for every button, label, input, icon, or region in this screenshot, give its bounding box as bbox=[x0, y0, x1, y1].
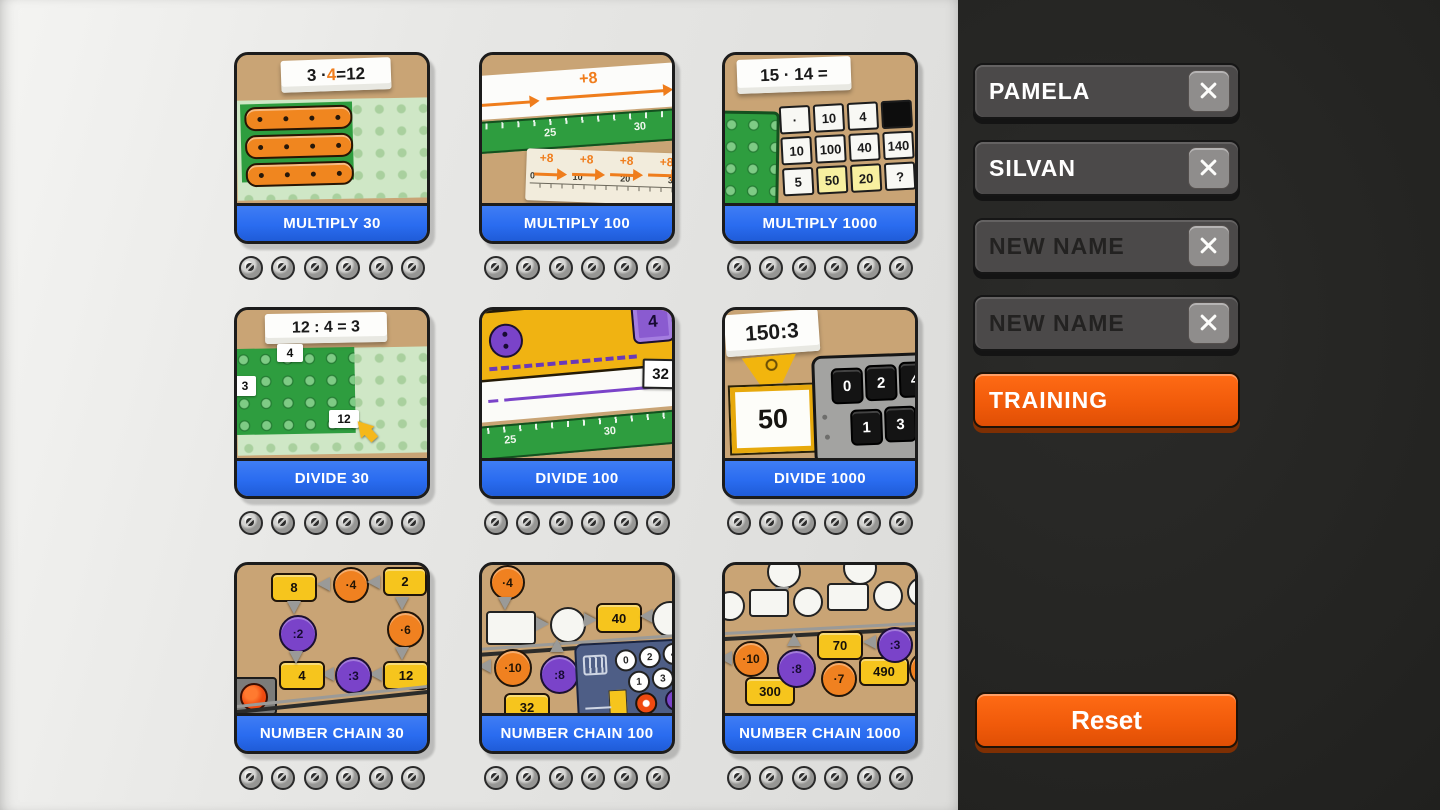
card-title: MULTIPLY 100 bbox=[482, 203, 672, 241]
progress-screw bbox=[304, 256, 328, 280]
progress-screw bbox=[727, 766, 751, 790]
game-card-divide-1000[interactable]: 150:3 50 0 2 4 1 3 DIVIDE 1000 bbox=[722, 307, 918, 499]
training-button[interactable]: TRAINING bbox=[973, 372, 1240, 428]
progress-screw bbox=[614, 511, 638, 535]
card-illustration: 3 · 4 =12 bbox=[237, 55, 427, 203]
panel-line bbox=[585, 706, 611, 709]
chain-arrow-icon bbox=[482, 659, 491, 673]
player-slot-3[interactable]: NEW NAME bbox=[973, 218, 1240, 274]
chain-arrow-icon bbox=[289, 651, 303, 664]
progress-screw bbox=[824, 511, 848, 535]
progress-row bbox=[479, 256, 675, 280]
orange-rod bbox=[245, 133, 354, 160]
card-unit-number-chain-100: ·4 40 ·10 :8 32 bbox=[479, 562, 675, 790]
card-illustration: 12 : 4 = 3 4 3 12 bbox=[237, 310, 427, 458]
equation-part: =12 bbox=[336, 64, 366, 85]
progress-screw bbox=[271, 511, 295, 535]
table-cell: ? bbox=[884, 161, 915, 191]
progress-screw bbox=[759, 256, 783, 280]
table-cell: 10 bbox=[780, 136, 812, 166]
table-cell: 100 bbox=[814, 134, 846, 164]
progress-screw bbox=[516, 766, 540, 790]
multiplication-table: · 10 4 10 100 40 140 5 50 20 ? bbox=[779, 100, 915, 197]
progress-row bbox=[234, 511, 430, 535]
progress-screw bbox=[304, 511, 328, 535]
equation-note: 15 · 14 = bbox=[736, 56, 851, 94]
dimension-tag: 3 bbox=[237, 376, 256, 396]
player-name-placeholder: NEW NAME bbox=[989, 310, 1188, 337]
orange-rod bbox=[244, 105, 353, 132]
panel-key: 0 bbox=[614, 649, 637, 672]
game-card-multiply-30[interactable]: 3 · 4 =12 MULTIPLY 30 bbox=[234, 52, 430, 244]
orange-rod bbox=[246, 161, 355, 188]
equation-note: 150:3 bbox=[725, 310, 820, 357]
close-icon[interactable] bbox=[1188, 225, 1230, 267]
panel-key: 2 bbox=[638, 646, 661, 669]
game-card-multiply-100[interactable]: +8 25 30 +8 +8 +8 +8 bbox=[479, 52, 675, 244]
progress-screw bbox=[271, 766, 295, 790]
card-title: DIVIDE 1000 bbox=[725, 458, 915, 496]
progress-screw bbox=[369, 766, 393, 790]
card-title: DIVIDE 100 bbox=[482, 458, 672, 496]
panel-slider bbox=[608, 689, 627, 713]
player-slot-1[interactable]: PAMELA bbox=[973, 63, 1240, 119]
ruler-tick: 30 bbox=[603, 425, 616, 438]
progress-screw bbox=[271, 256, 295, 280]
level-select-area: 3 · 4 =12 MULTIPLY 30 +8 bbox=[0, 0, 958, 810]
player-name: PAMELA bbox=[989, 78, 1188, 105]
progress-screw bbox=[727, 256, 751, 280]
player-slot-4[interactable]: NEW NAME bbox=[973, 295, 1240, 351]
progress-screw bbox=[581, 256, 605, 280]
peg-board bbox=[240, 102, 354, 183]
card-unit-number-chain-1000: ·10 300 :8 70 ·7 490 :3 ·12 NUMBER CHAIN… bbox=[722, 562, 918, 790]
close-icon[interactable] bbox=[1188, 147, 1230, 189]
progress-row bbox=[722, 766, 918, 790]
progress-row bbox=[479, 766, 675, 790]
paper-op: +8 bbox=[580, 152, 594, 166]
chain-empty-circle bbox=[652, 601, 672, 637]
dimension-tag: 4 bbox=[277, 344, 303, 362]
card-illustration: 15 · 14 = · 10 4 10 100 40 140 5 50 20 bbox=[725, 55, 915, 203]
close-icon[interactable] bbox=[1188, 70, 1230, 112]
progress-screw bbox=[336, 766, 360, 790]
progress-screw bbox=[239, 511, 263, 535]
progress-screw bbox=[369, 511, 393, 535]
card-title: MULTIPLY 30 bbox=[237, 203, 427, 241]
ruler-tick: 30 bbox=[633, 120, 646, 133]
keypad-key: 2 bbox=[864, 364, 897, 401]
progress-screw bbox=[401, 766, 425, 790]
progress-screw bbox=[759, 511, 783, 535]
card-title: NUMBER CHAIN 100 bbox=[482, 713, 672, 751]
paper-op: +8 bbox=[540, 151, 554, 165]
progress-screw bbox=[401, 511, 425, 535]
progress-screw bbox=[304, 766, 328, 790]
progress-screw bbox=[824, 766, 848, 790]
progress-row bbox=[722, 256, 918, 280]
card-illustration: ·4 40 ·10 :8 32 bbox=[482, 565, 672, 713]
table-cell: 4 bbox=[847, 101, 879, 131]
card-title: MULTIPLY 1000 bbox=[725, 203, 915, 241]
chain-op: ·7 bbox=[821, 661, 857, 697]
progress-screw bbox=[581, 511, 605, 535]
chain-arrow-icon bbox=[395, 597, 409, 610]
divide-symbol-icon bbox=[488, 322, 525, 359]
progress-screw bbox=[401, 256, 425, 280]
card-unit-multiply-30: 3 · 4 =12 MULTIPLY 30 bbox=[234, 52, 430, 280]
progress-screw bbox=[824, 256, 848, 280]
table-cell: 140 bbox=[882, 131, 914, 161]
chain-empty-circle bbox=[843, 565, 877, 585]
game-card-number-chain-1000[interactable]: ·10 300 :8 70 ·7 490 :3 ·12 NUMBER CHAIN… bbox=[722, 562, 918, 754]
chain-empty-circle bbox=[907, 577, 915, 607]
table-cell: 20 bbox=[850, 163, 882, 193]
card-unit-divide-1000: 150:3 50 0 2 4 1 3 DIVIDE 1000 bbox=[722, 307, 918, 535]
table-cell: 5 bbox=[782, 167, 814, 197]
chain-arrow-icon bbox=[787, 633, 801, 646]
progress-screw bbox=[614, 766, 638, 790]
chain-empty-circle bbox=[550, 607, 586, 643]
chain-op: ·10 bbox=[733, 641, 769, 677]
equation-note: 3 · 4 =12 bbox=[280, 57, 391, 93]
player-name-placeholder: NEW NAME bbox=[989, 233, 1188, 260]
keypad-key: 3 bbox=[884, 406, 915, 443]
progress-screw bbox=[759, 766, 783, 790]
chain-empty-circle bbox=[873, 581, 903, 611]
player-slot-2[interactable]: SILVAN bbox=[973, 140, 1240, 196]
input-panel: 0 2 4 1 3 5 bbox=[574, 638, 672, 713]
chain-op: ·4 bbox=[333, 567, 369, 603]
player-sidebar: PAMELA SILVAN NEW NAME NEW NAME TRAINING… bbox=[958, 0, 1440, 810]
training-label: TRAINING bbox=[989, 387, 1230, 414]
progress-row bbox=[722, 511, 918, 535]
chain-op: :2 bbox=[279, 615, 317, 653]
chain-op: :8 bbox=[540, 655, 579, 694]
equation-note: 12 : 4 = 3 bbox=[265, 312, 388, 344]
progress-screw bbox=[857, 256, 881, 280]
chain-op: :8 bbox=[777, 649, 816, 688]
paper-op: +8 bbox=[619, 153, 633, 167]
progress-screw bbox=[889, 256, 913, 280]
progress-screw bbox=[369, 256, 393, 280]
chain-op: :3 bbox=[877, 627, 913, 663]
equation-part: 3 · bbox=[307, 65, 328, 86]
card-unit-divide-100: 4 32 25 30 DIVIDE 100 bbox=[479, 307, 675, 535]
card-unit-multiply-100: +8 25 30 +8 +8 +8 +8 bbox=[479, 52, 675, 280]
progress-screw bbox=[614, 256, 638, 280]
game-card-number-chain-30[interactable]: 8 ·4 2 ·6 12 :3 4 :2 bbox=[234, 562, 430, 754]
chain-op: ·4 bbox=[490, 565, 525, 600]
game-card-divide-100[interactable]: 4 32 25 30 DIVIDE 100 bbox=[479, 307, 675, 499]
chain-empty-circle bbox=[767, 565, 801, 589]
chain-empty-circle bbox=[725, 591, 745, 621]
chain-arrow-icon bbox=[395, 647, 409, 660]
ruler-tick: 25 bbox=[504, 434, 517, 447]
jump-arrow bbox=[482, 100, 531, 107]
purple-token-icon bbox=[664, 688, 672, 711]
progress-screw bbox=[792, 256, 816, 280]
chain-arrow-icon bbox=[725, 651, 732, 665]
card-illustration: 4 32 25 30 bbox=[482, 310, 672, 458]
chain-op: ·12 bbox=[909, 651, 915, 687]
chain-number: 70 bbox=[817, 631, 863, 660]
table-cell: · bbox=[779, 105, 811, 135]
progress-screw bbox=[549, 511, 573, 535]
chain-arrow-icon bbox=[536, 617, 549, 631]
chain-arrow-icon bbox=[367, 575, 380, 589]
progress-screw bbox=[336, 256, 360, 280]
reset-label: Reset bbox=[1071, 705, 1142, 736]
card-illustration: 150:3 50 0 2 4 1 3 bbox=[725, 310, 915, 458]
progress-screw bbox=[792, 766, 816, 790]
quotient-tag: 32 bbox=[642, 359, 672, 390]
chain-op: :3 bbox=[335, 657, 372, 694]
chain-arrow-icon bbox=[863, 635, 876, 649]
chain-op: ·6 bbox=[387, 611, 424, 648]
card-unit-multiply-1000: 15 · 14 = · 10 4 10 100 40 140 5 50 20 bbox=[722, 52, 918, 280]
progress-screw bbox=[889, 511, 913, 535]
ruler-tick: 25 bbox=[544, 127, 557, 140]
dividend-card: 50 bbox=[730, 385, 816, 454]
card-title: DIVIDE 30 bbox=[237, 458, 427, 496]
chain-arrow-icon bbox=[317, 577, 330, 591]
reset-button[interactable]: Reset bbox=[975, 692, 1238, 748]
card-illustration: 8 ·4 2 ·6 12 :3 4 :2 bbox=[237, 565, 427, 713]
progress-screw bbox=[792, 511, 816, 535]
chain-number: 40 bbox=[596, 603, 642, 633]
game-card-divide-30[interactable]: 12 : 4 = 3 4 3 12 DIVIDE 30 bbox=[234, 307, 430, 499]
game-card-number-chain-100[interactable]: ·4 40 ·10 :8 32 bbox=[479, 562, 675, 754]
progress-row bbox=[479, 511, 675, 535]
progress-screw bbox=[484, 256, 508, 280]
dashed-line bbox=[489, 354, 637, 371]
chain-arrow-icon bbox=[550, 639, 564, 652]
table-cell: 40 bbox=[848, 132, 880, 162]
card-unit-number-chain-30: 8 ·4 2 ·6 12 :3 4 :2 bbox=[234, 562, 430, 790]
progress-screw bbox=[857, 766, 881, 790]
panel-key: 1 bbox=[627, 670, 650, 693]
card-unit-divide-30: 12 : 4 = 3 4 3 12 DIVIDE 30 bbox=[234, 307, 430, 535]
card-illustration: +8 25 30 +8 +8 +8 +8 bbox=[482, 55, 672, 203]
chain-arrow-icon bbox=[640, 609, 653, 623]
peg-board bbox=[725, 110, 780, 203]
panel-key: 4 bbox=[662, 642, 672, 665]
paper-op: +8 bbox=[659, 155, 672, 169]
chain-empty-box bbox=[827, 583, 869, 611]
progress-screw bbox=[889, 766, 913, 790]
progress-screw bbox=[646, 511, 670, 535]
progress-screw bbox=[484, 511, 508, 535]
progress-screw bbox=[516, 256, 540, 280]
chain-arrow-icon bbox=[498, 597, 512, 610]
progress-screw bbox=[646, 766, 670, 790]
jump-arrow bbox=[546, 89, 664, 100]
divisor-box: 4 bbox=[630, 310, 672, 345]
chain-number: 2 bbox=[383, 567, 427, 596]
chain-empty-box bbox=[749, 589, 789, 617]
keypad-key: 0 bbox=[831, 367, 864, 404]
card-title: NUMBER CHAIN 30 bbox=[237, 713, 427, 751]
progress-row bbox=[234, 256, 430, 280]
game-card-multiply-1000[interactable]: 15 · 14 = · 10 4 10 100 40 140 5 50 20 bbox=[722, 52, 918, 244]
progress-screw bbox=[581, 766, 605, 790]
card-illustration: ·10 300 :8 70 ·7 490 :3 ·12 bbox=[725, 565, 915, 713]
worksheet-paper: +8 +8 +8 +8 0 10 20 bbox=[525, 148, 672, 203]
progress-row bbox=[234, 766, 430, 790]
player-name: SILVAN bbox=[989, 155, 1188, 182]
orange-token-icon bbox=[635, 692, 658, 713]
progress-screw bbox=[336, 511, 360, 535]
progress-screw bbox=[857, 511, 881, 535]
progress-screw bbox=[646, 256, 670, 280]
close-icon[interactable] bbox=[1188, 302, 1230, 344]
progress-screw bbox=[239, 256, 263, 280]
panel-key: 3 bbox=[651, 667, 672, 690]
chain-number: 8 bbox=[271, 573, 317, 602]
app-window: 3 · 4 =12 MULTIPLY 30 +8 bbox=[0, 0, 1440, 810]
table-cell-blocked bbox=[881, 100, 913, 130]
progress-screw bbox=[549, 766, 573, 790]
operation-label: +8 bbox=[579, 70, 598, 89]
progress-screw bbox=[516, 511, 540, 535]
table-cell: 10 bbox=[813, 103, 845, 133]
chain-op: ·10 bbox=[494, 649, 532, 687]
card-title: NUMBER CHAIN 1000 bbox=[725, 713, 915, 751]
chain-number: 32 bbox=[504, 693, 550, 713]
progress-screw bbox=[484, 766, 508, 790]
progress-screw bbox=[727, 511, 751, 535]
chain-empty-circle bbox=[793, 587, 823, 617]
table-cell: 50 bbox=[816, 165, 848, 195]
progress-screw bbox=[549, 256, 573, 280]
progress-screw bbox=[239, 766, 263, 790]
keypad-key: 4 bbox=[898, 361, 915, 398]
keypad: 0 2 4 1 3 bbox=[811, 352, 915, 458]
chain-arrow-icon bbox=[287, 601, 301, 614]
trash-icon bbox=[583, 654, 608, 675]
yellow-clip bbox=[738, 353, 802, 386]
chain-number: 4 bbox=[279, 661, 325, 690]
keypad-key: 1 bbox=[850, 409, 883, 446]
chain-empty-box bbox=[486, 611, 536, 645]
